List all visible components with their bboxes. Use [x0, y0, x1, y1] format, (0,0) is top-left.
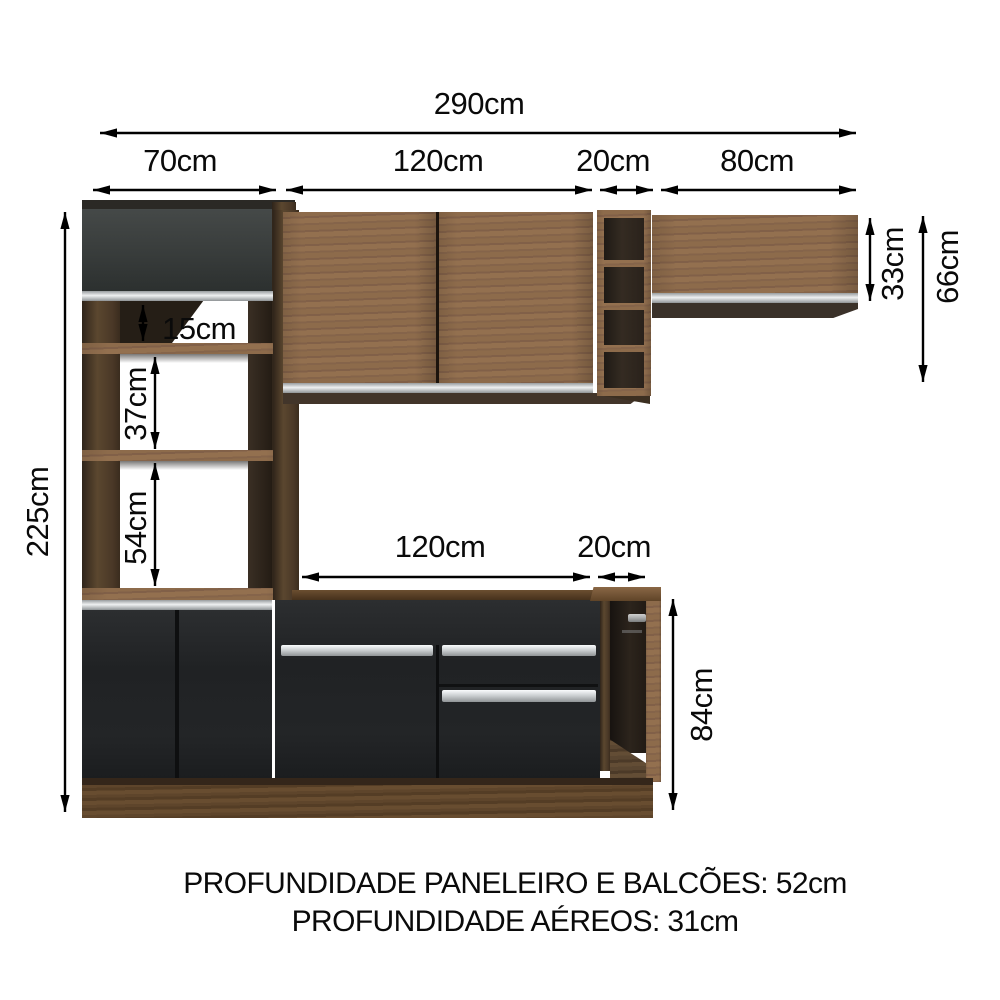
label-counter-end-width: 20cm — [577, 529, 651, 565]
label-total-width: 290cm — [434, 86, 525, 122]
label-upper-cabinet-width: 120cm — [393, 143, 484, 179]
label-shelf-column-width: 20cm — [576, 143, 650, 179]
label-niche-top-height: 15cm — [162, 311, 236, 347]
label-niche-middle-height: 37cm — [118, 367, 154, 441]
label-counter-width: 120cm — [395, 529, 486, 565]
label-total-height: 225cm — [20, 467, 56, 558]
label-upper-section-height: 66cm — [930, 230, 966, 304]
label-niche-bottom-height: 54cm — [118, 491, 154, 565]
kitchen-dimension-diagram: 290cm 70cm 120cm 20cm 80cm 225cm 15cm 37… — [0, 0, 1000, 1000]
label-pantry-width: 70cm — [143, 143, 217, 179]
label-right-upper-height: 33cm — [875, 227, 911, 301]
label-right-upper-width: 80cm — [720, 143, 794, 179]
label-counter-height: 84cm — [684, 668, 720, 742]
